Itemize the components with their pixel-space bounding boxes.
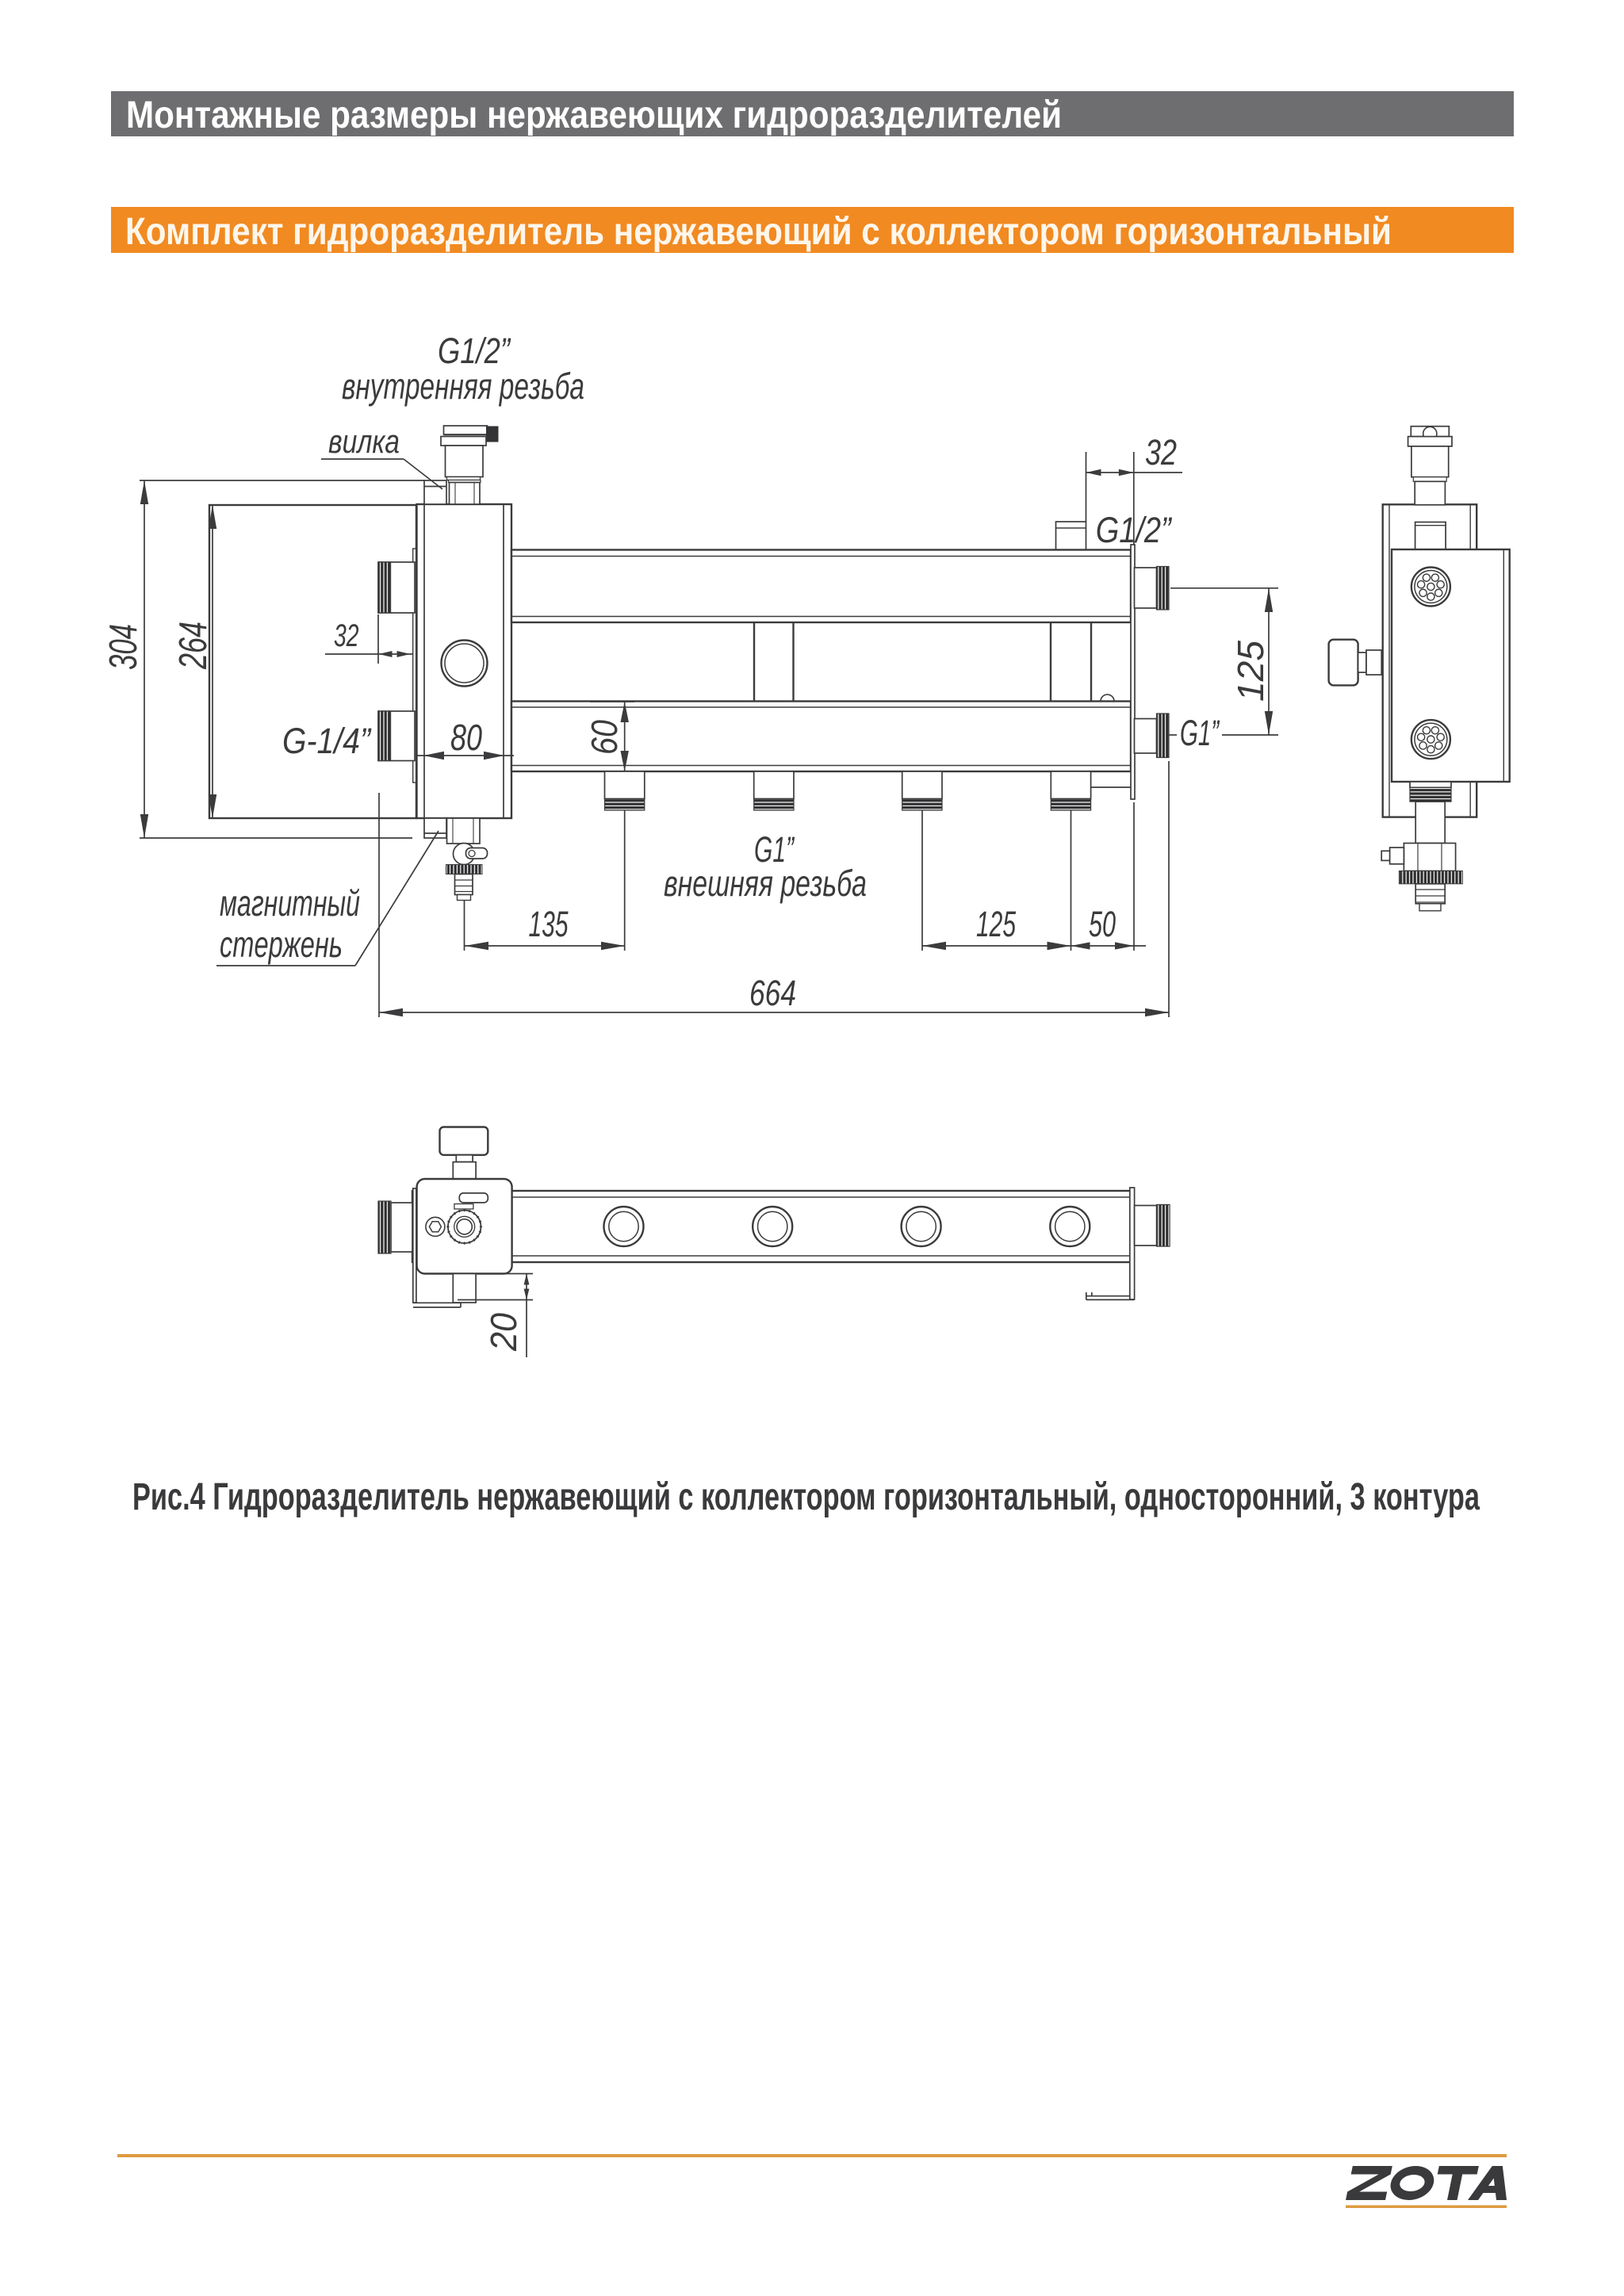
svg-text:вилка: вилка (328, 423, 400, 460)
svg-text:32: 32 (334, 618, 359, 653)
svg-text:внешняя резьба: внешняя резьба (664, 863, 867, 904)
svg-text:магнитный: магнитный (220, 882, 360, 924)
svg-text:G1”: G1” (1180, 713, 1220, 753)
svg-text:20: 20 (483, 1313, 524, 1352)
svg-text:32: 32 (1145, 432, 1177, 473)
svg-text:50: 50 (1089, 904, 1116, 944)
svg-text:125: 125 (1230, 641, 1271, 702)
svg-text:60: 60 (584, 720, 625, 755)
svg-text:304: 304 (102, 624, 145, 670)
svg-text:Комплект гидроразделитель нерж: Комплект гидроразделитель нержавеющий с … (125, 211, 1392, 253)
svg-text:внутренняя резьба: внутренняя резьба (342, 365, 584, 407)
svg-text:125: 125 (976, 904, 1017, 944)
svg-text:135: 135 (529, 904, 569, 944)
svg-text:80: 80 (450, 717, 482, 758)
svg-text:Рис.4 Гидроразделитель нержаве: Рис.4 Гидроразделитель нержавеющий с кол… (132, 1476, 1480, 1518)
svg-text:G1/2”: G1/2” (1096, 510, 1173, 550)
svg-text:264: 264 (172, 622, 215, 670)
svg-text:Монтажные размеры нержавеющих: Монтажные размеры нержавеющих гидроразде… (126, 94, 1062, 136)
svg-text:G-1/4”: G-1/4” (282, 721, 372, 761)
svg-text:664: 664 (749, 973, 796, 1013)
svg-text:стержень: стержень (220, 924, 343, 965)
